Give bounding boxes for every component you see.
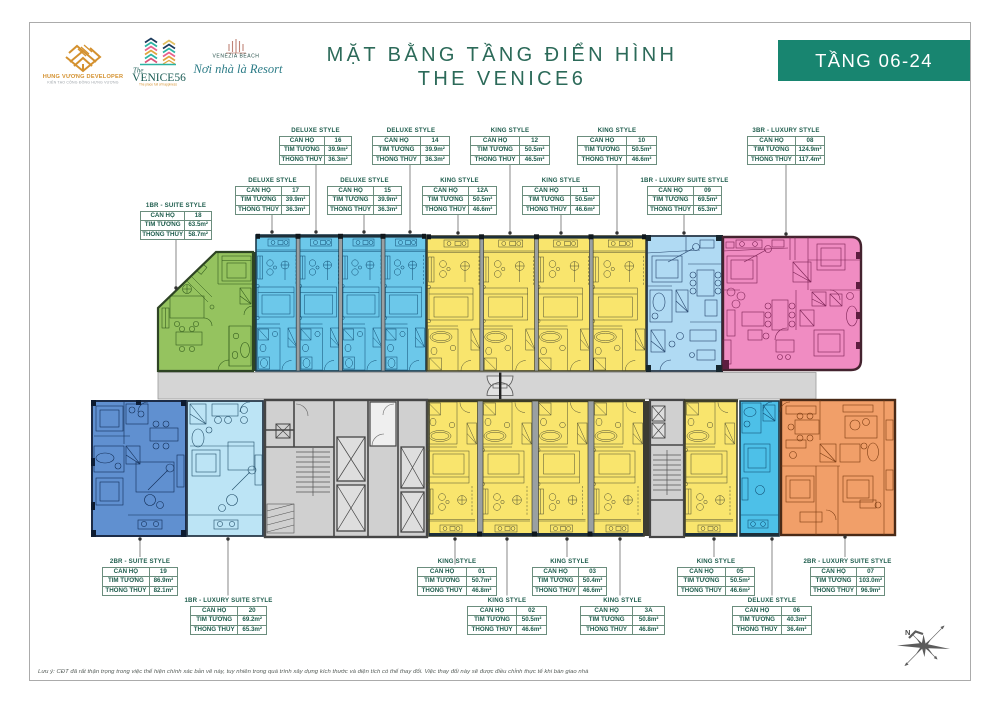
svg-text:N: N	[905, 628, 910, 637]
